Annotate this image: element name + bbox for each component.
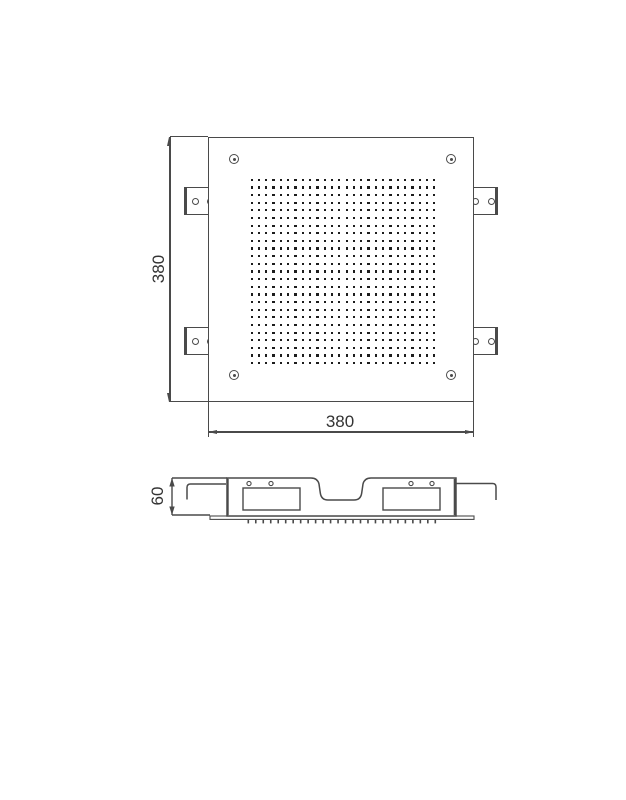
nozzle-dot [367, 286, 369, 288]
nozzle-dot [316, 301, 318, 303]
nozzle-dot [411, 209, 413, 211]
nozzle-dot [258, 332, 260, 334]
nozzle-dot [265, 270, 267, 272]
nozzle-dot [360, 232, 362, 234]
nozzle-dot [309, 278, 311, 280]
nozzle-dot [316, 278, 318, 280]
nozzle-dot [360, 202, 362, 204]
nozzle-dot [433, 316, 435, 318]
nozzle-dot [338, 225, 340, 227]
nozzle-dot [324, 332, 326, 334]
nozzle-dot [367, 263, 369, 265]
nozzle-tick [367, 520, 369, 523]
nozzle-dot [426, 362, 428, 364]
nozzle-dot [411, 255, 413, 257]
nozzle-dot [331, 362, 333, 364]
nozzle-dot [404, 309, 406, 311]
nozzle-dot [419, 339, 421, 341]
nozzle-dot [324, 362, 326, 364]
nozzle-dot [280, 324, 282, 326]
nozzle-dot [353, 309, 355, 311]
nozzle-dot [382, 354, 384, 356]
nozzle-dot [338, 339, 340, 341]
nozzle-dot [287, 324, 289, 326]
nozzle-dot [411, 278, 413, 280]
nozzle-dot [272, 217, 274, 219]
nozzle-dot [287, 316, 289, 318]
nozzle-dot [294, 362, 296, 364]
nozzle-dot [419, 347, 421, 349]
nozzle-tick [427, 520, 429, 523]
nozzle-dot [302, 339, 304, 341]
nozzle-dot [346, 309, 348, 311]
nozzle-dot [251, 309, 253, 311]
nozzle-dot [324, 240, 326, 242]
nozzle-dot [404, 194, 406, 196]
nozzle-dot [265, 209, 267, 211]
nozzle-dot [426, 309, 428, 311]
nozzle-dot [265, 339, 267, 341]
nozzle-dot [251, 293, 253, 295]
nozzle-dot [353, 202, 355, 204]
nozzle-dot [360, 209, 362, 211]
nozzle-dot [309, 347, 311, 349]
nozzle-dot [309, 194, 311, 196]
nozzle-dot [360, 278, 362, 280]
nozzle-dot [346, 202, 348, 204]
nozzle-dot [265, 354, 267, 356]
nozzle-dot [433, 278, 435, 280]
nozzle-dot [280, 270, 282, 272]
nozzle-dot [419, 332, 421, 334]
nozzle-dot [346, 217, 348, 219]
nozzle-dot [294, 255, 296, 257]
nozzle-dot [360, 217, 362, 219]
nozzle-dot [404, 270, 406, 272]
nozzle-dot [397, 339, 399, 341]
nozzle-dot [272, 309, 274, 311]
nozzle-dot [287, 278, 289, 280]
nozzle-dot [353, 339, 355, 341]
nozzle-dot [272, 293, 274, 295]
nozzle-dot [309, 240, 311, 242]
nozzle-dot [265, 202, 267, 204]
nozzle-dot [309, 354, 311, 356]
nozzle-dot [287, 301, 289, 303]
nozzle-dot [331, 278, 333, 280]
nozzle-tick [255, 520, 257, 523]
nozzle-dot [404, 339, 406, 341]
nozzle-dot [411, 240, 413, 242]
nozzle-dot [302, 186, 304, 188]
shower-plate-outline [208, 137, 474, 402]
nozzle-dot [346, 286, 348, 288]
corner-screw-top-right [446, 154, 456, 164]
nozzle-dot [419, 179, 421, 181]
nozzle-dot [272, 301, 274, 303]
nozzle-dot [382, 255, 384, 257]
nozzle-dot [397, 179, 399, 181]
nozzle-dot [302, 362, 304, 364]
nozzle-dot [265, 179, 267, 181]
nozzle-dot [353, 324, 355, 326]
nozzle-dot [280, 232, 282, 234]
nozzle-dot [397, 202, 399, 204]
nozzle-dot [375, 347, 377, 349]
nozzle-dot [382, 362, 384, 364]
nozzle-dot [360, 286, 362, 288]
nozzle-dot [411, 286, 413, 288]
nozzle-dot [382, 293, 384, 295]
nozzle-dot [404, 316, 406, 318]
nozzle-dot [397, 217, 399, 219]
dimension-arrow-up [169, 478, 174, 487]
nozzle-dot [360, 179, 362, 181]
nozzle-dot [426, 301, 428, 303]
nozzle-tick [277, 520, 279, 523]
nozzle-dot [426, 232, 428, 234]
nozzle-dot [294, 247, 296, 249]
nozzle-dot [419, 301, 421, 303]
nozzle-dot [426, 255, 428, 257]
nozzle-dot [258, 194, 260, 196]
nozzle-dot [324, 217, 326, 219]
nozzle-dot [360, 316, 362, 318]
nozzle-dot [389, 332, 391, 334]
nozzle-dot [251, 362, 253, 364]
nozzle-dot [375, 286, 377, 288]
nozzle-dot [389, 347, 391, 349]
nozzle-dot [397, 286, 399, 288]
nozzle-dot [404, 179, 406, 181]
nozzle-dot [272, 225, 274, 227]
nozzle-dot [404, 240, 406, 242]
nozzle-dot [331, 301, 333, 303]
nozzle-dot [265, 332, 267, 334]
nozzle-dot [346, 240, 348, 242]
nozzle-dot [360, 186, 362, 188]
nozzle-dot [382, 217, 384, 219]
nozzle-dot [338, 332, 340, 334]
nozzle-dot [302, 301, 304, 303]
nozzle-dot [258, 278, 260, 280]
nozzle-dot [287, 339, 289, 341]
nozzle-tick [397, 520, 399, 523]
nozzle-dot [338, 286, 340, 288]
nozzle-dot [287, 255, 289, 257]
nozzle-dot [258, 339, 260, 341]
nozzle-dot [433, 309, 435, 311]
nozzle-dot [338, 232, 340, 234]
nozzle-dot [258, 354, 260, 356]
nozzle-dot [404, 247, 406, 249]
nozzle-dot [389, 293, 391, 295]
nozzle-dot [433, 232, 435, 234]
nozzle-dot [302, 247, 304, 249]
nozzle-dot [353, 225, 355, 227]
nozzle-dot [338, 316, 340, 318]
nozzle-dot [331, 354, 333, 356]
nozzle-dot [309, 232, 311, 234]
nozzle-dot [367, 347, 369, 349]
nozzle-dot [331, 309, 333, 311]
nozzle-dot [375, 354, 377, 356]
nozzle-dot [419, 263, 421, 265]
mounting-bracket-bottom-left [184, 327, 210, 355]
nozzle-dot [302, 324, 304, 326]
nozzle-dot [360, 332, 362, 334]
nozzle-dot [404, 347, 406, 349]
nozzle-dot [265, 324, 267, 326]
nozzle-dot [251, 263, 253, 265]
nozzle-dot [258, 286, 260, 288]
nozzle-dot [397, 255, 399, 257]
nozzle-dot [419, 240, 421, 242]
nozzle-dot [272, 354, 274, 356]
nozzle-dot [346, 339, 348, 341]
nozzle-dot [294, 194, 296, 196]
nozzle-dot [397, 209, 399, 211]
nozzle-dot [331, 240, 333, 242]
nozzle-tick [352, 520, 354, 523]
nozzle-dot [353, 232, 355, 234]
nozzle-dot [287, 263, 289, 265]
nozzle-dot [294, 225, 296, 227]
nozzle-dot [280, 293, 282, 295]
nozzle-dot [382, 186, 384, 188]
nozzle-dot [426, 316, 428, 318]
nozzle-dot [411, 332, 413, 334]
nozzle-dot [287, 202, 289, 204]
dimension-arrow-down [167, 393, 171, 402]
nozzle-dot [433, 240, 435, 242]
nozzle-dot [367, 354, 369, 356]
nozzle-dot [389, 278, 391, 280]
nozzle-dot [272, 247, 274, 249]
nozzle-dot [294, 186, 296, 188]
nozzle-dot [338, 309, 340, 311]
nozzle-dot [272, 186, 274, 188]
nozzle-dot [258, 324, 260, 326]
nozzle-dot [258, 232, 260, 234]
nozzle-dot [309, 209, 311, 211]
nozzle-dot [367, 309, 369, 311]
nozzle-dot [433, 225, 435, 227]
nozzle-dot [397, 186, 399, 188]
nozzle-dot [397, 270, 399, 272]
nozzle-dot [404, 263, 406, 265]
nozzle-dot [360, 347, 362, 349]
nozzle-tick [412, 520, 414, 523]
nozzle-tick [390, 520, 392, 523]
nozzle-dot [397, 316, 399, 318]
nozzle-dot [287, 209, 289, 211]
screw-center-dot [233, 374, 236, 377]
nozzle-tick [262, 520, 264, 523]
nozzle-dot [426, 293, 428, 295]
nozzle-dot [265, 186, 267, 188]
nozzle-dot [324, 301, 326, 303]
nozzle-dot [353, 286, 355, 288]
dimension-arrow-right [465, 430, 474, 434]
nozzle-dot [251, 324, 253, 326]
nozzle-dot [324, 263, 326, 265]
nozzle-dot [411, 354, 413, 356]
nozzle-dot [316, 225, 318, 227]
nozzle-dot [433, 270, 435, 272]
nozzle-dot [294, 202, 296, 204]
nozzle-dot [302, 217, 304, 219]
nozzle-dot [309, 202, 311, 204]
nozzle-dot [309, 332, 311, 334]
nozzle-dot [367, 232, 369, 234]
nozzle-dot [382, 270, 384, 272]
nozzle-dot [280, 278, 282, 280]
nozzle-dot [382, 194, 384, 196]
nozzle-tick [330, 520, 332, 523]
nozzle-dot [382, 179, 384, 181]
nozzle-dot [251, 354, 253, 356]
nozzle-dot [338, 263, 340, 265]
nozzle-dot [389, 225, 391, 227]
nozzle-tick [420, 520, 422, 523]
nozzle-dot [251, 202, 253, 204]
nozzle-dot [258, 225, 260, 227]
nozzle-dot [375, 278, 377, 280]
nozzle-dot [331, 347, 333, 349]
nozzle-dot [353, 293, 355, 295]
nozzle-dot [272, 316, 274, 318]
nozzle-dot [397, 240, 399, 242]
nozzle-dot [294, 354, 296, 356]
nozzle-dot [272, 332, 274, 334]
nozzle-dot [382, 263, 384, 265]
nozzle-dot [316, 347, 318, 349]
nozzle-dot [389, 209, 391, 211]
nozzle-dot [367, 186, 369, 188]
nozzle-dot [389, 270, 391, 272]
nozzle-dot [411, 293, 413, 295]
nozzle-dot [433, 263, 435, 265]
nozzle-dot [251, 278, 253, 280]
nozzle-dot [324, 324, 326, 326]
nozzle-dot [397, 225, 399, 227]
nozzle-dot [316, 362, 318, 364]
nozzle-dot [375, 255, 377, 257]
nozzle-dot [426, 179, 428, 181]
nozzle-dot [375, 194, 377, 196]
nozzle-dot [389, 309, 391, 311]
nozzle-dot [280, 301, 282, 303]
nozzle-dot [272, 194, 274, 196]
nozzle-dot [280, 225, 282, 227]
mounting-bracket-top-left [184, 187, 210, 215]
nozzle-dot [419, 225, 421, 227]
nozzle-dot [251, 332, 253, 334]
nozzle-dot [258, 247, 260, 249]
nozzle-dot [360, 194, 362, 196]
nozzle-dot [375, 339, 377, 341]
nozzle-dot [338, 270, 340, 272]
nozzle-dot [404, 362, 406, 364]
nozzle-dot [309, 263, 311, 265]
nozzle-dot [302, 354, 304, 356]
nozzle-dot [360, 255, 362, 257]
nozzle-dot [346, 316, 348, 318]
nozzle-dot [375, 240, 377, 242]
nozzle-dot [360, 362, 362, 364]
nozzle-dot [287, 247, 289, 249]
nozzle-dot [411, 301, 413, 303]
nozzle-dot [411, 316, 413, 318]
nozzle-dot [360, 240, 362, 242]
dimension-line-height [169, 137, 170, 402]
nozzle-dot [433, 293, 435, 295]
nozzle-dot [426, 270, 428, 272]
nozzle-dot [251, 247, 253, 249]
nozzle-dot [346, 347, 348, 349]
nozzle-dot [272, 347, 274, 349]
nozzle-dot [287, 362, 289, 364]
nozzle-dot [309, 293, 311, 295]
nozzle-dot [389, 179, 391, 181]
nozzle-dot [404, 217, 406, 219]
nozzle-dot [302, 316, 304, 318]
nozzle-dot [302, 179, 304, 181]
nozzle-dot [360, 293, 362, 295]
nozzle-dot [302, 347, 304, 349]
nozzle-dot [294, 301, 296, 303]
nozzle-dot [353, 316, 355, 318]
nozzle-dot [338, 194, 340, 196]
nozzle-dot [433, 186, 435, 188]
nozzle-dot [294, 309, 296, 311]
nozzle-dot [331, 255, 333, 257]
nozzle-dot [419, 202, 421, 204]
nozzle-dot [353, 354, 355, 356]
nozzle-dot [280, 247, 282, 249]
extension-line-bottom [170, 401, 208, 402]
nozzle-dot [404, 354, 406, 356]
nozzle-dot [251, 186, 253, 188]
nozzle-dot [367, 202, 369, 204]
nozzle-dot [360, 270, 362, 272]
nozzle-dot [411, 263, 413, 265]
nozzle-dot [324, 347, 326, 349]
nozzle-dot [287, 240, 289, 242]
nozzle-dot [419, 354, 421, 356]
nozzle-dot [294, 179, 296, 181]
nozzle-dot [294, 339, 296, 341]
nozzle-tick [307, 520, 309, 523]
nozzle-dot [294, 232, 296, 234]
nozzle-dot [367, 278, 369, 280]
nozzle-dot [346, 278, 348, 280]
corner-screw-top-left [229, 154, 239, 164]
nozzle-dot [331, 324, 333, 326]
nozzle-dot [287, 179, 289, 181]
side-view [140, 470, 520, 532]
dimension-line-width [208, 431, 474, 432]
nozzle-dot [272, 278, 274, 280]
nozzle-dot [419, 255, 421, 257]
nozzle-dot [397, 324, 399, 326]
nozzle-dot [280, 209, 282, 211]
nozzle-dot [294, 278, 296, 280]
nozzle-dot [251, 232, 253, 234]
bracket-hole [192, 198, 199, 205]
nozzle-dot [316, 247, 318, 249]
